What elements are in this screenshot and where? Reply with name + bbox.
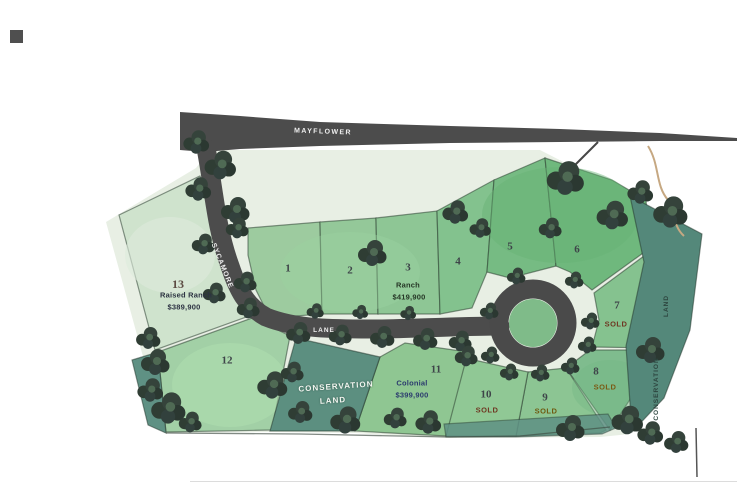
lot-7-number: 7 <box>614 301 620 312</box>
lot-11-listing-price: $399,900 <box>396 391 429 399</box>
lot-1-number: 1 <box>285 264 291 275</box>
lot-3-listing-price: $419,900 <box>393 293 426 301</box>
lot-8-number: 8 <box>593 367 599 378</box>
lot-13-number: 13 <box>172 278 184 290</box>
lot-12-number: 12 <box>222 356 233 367</box>
mayflower-road <box>180 112 737 152</box>
stray-mark-line <box>696 428 697 477</box>
lot-3-listing-type: Ranch <box>396 281 420 289</box>
scan-artifact-line <box>190 481 737 482</box>
lot-6-number: 6 <box>574 245 580 256</box>
lot-7-sold-badge: SOLD <box>605 320 628 328</box>
conservation-strip-label-line1: CONSERVATION <box>654 357 661 420</box>
scanned-subdivision-plot-map: MAYFLOWER SYCAMORE LANE CONSERVATION LAN… <box>0 0 737 491</box>
lot-8-sold-badge: SOLD <box>594 383 617 391</box>
lot-11-listing-type: Colonial <box>396 379 427 387</box>
site-plan-graphic <box>0 0 737 491</box>
conservation-strip-label-line2: LAND <box>664 295 671 317</box>
lot-9-sold-badge: SOLD <box>535 407 558 415</box>
lot-5-number: 5 <box>507 242 513 253</box>
lot-10-number: 10 <box>481 390 492 401</box>
lot-3-number: 3 <box>405 263 411 274</box>
lot-13-listing-price: $389,900 <box>168 303 201 311</box>
lot-2-number: 2 <box>347 266 353 277</box>
lot-11-number: 11 <box>431 365 441 376</box>
lot-9-number: 9 <box>542 393 548 404</box>
cul-de-sac-island <box>509 299 557 347</box>
lot-4-number: 4 <box>455 257 461 268</box>
lane-road-label: LANE <box>313 328 335 335</box>
lot-10-sold-badge: SOLD <box>476 406 499 414</box>
lot-13-listing-type: Raised Ranch <box>160 291 212 299</box>
